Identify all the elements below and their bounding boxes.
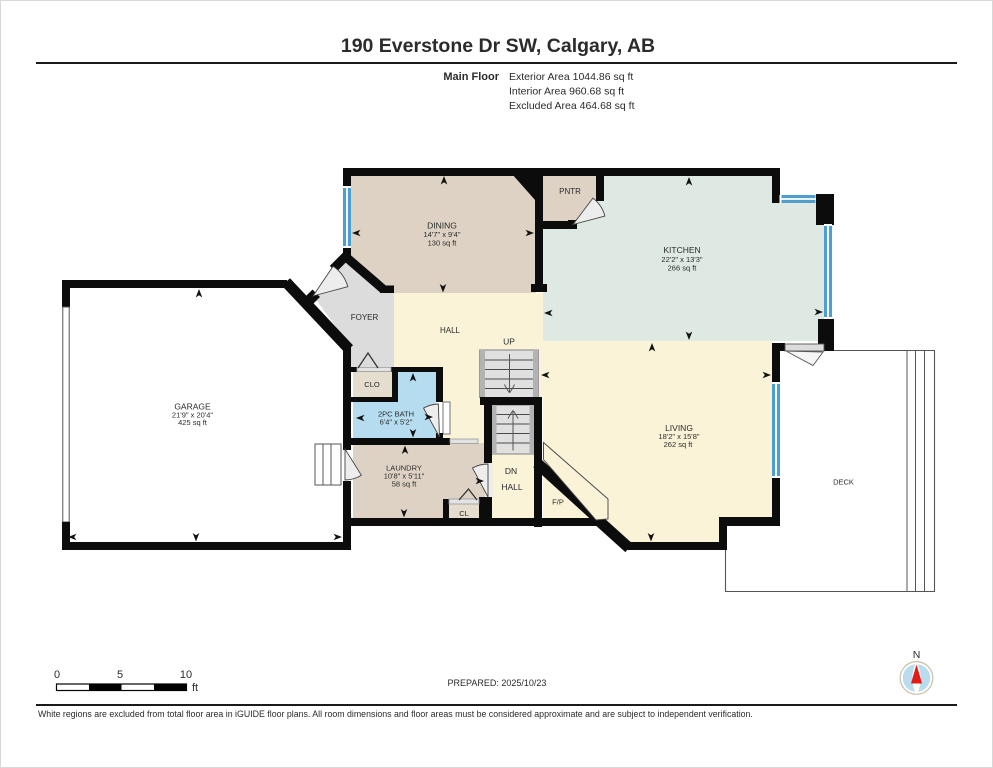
svg-text:DINING: DINING bbox=[427, 221, 457, 231]
svg-text:58 sq ft: 58 sq ft bbox=[392, 480, 418, 489]
svg-text:10: 10 bbox=[180, 669, 192, 681]
svg-text:PNTR: PNTR bbox=[559, 187, 581, 196]
svg-text:266 sq ft: 266 sq ft bbox=[668, 264, 698, 273]
svg-text:HALL: HALL bbox=[501, 482, 523, 492]
svg-text:FOYER: FOYER bbox=[351, 313, 379, 322]
svg-text:White regions are excluded fro: White regions are excluded from total fl… bbox=[38, 709, 753, 719]
svg-text:425 sq ft: 425 sq ft bbox=[178, 418, 208, 427]
svg-text:Interior Area 960.68 sq ft: Interior Area 960.68 sq ft bbox=[509, 86, 624, 98]
svg-text:6'4" x 5'2": 6'4" x 5'2" bbox=[380, 418, 413, 427]
svg-text:F/P: F/P bbox=[552, 498, 564, 507]
svg-text:HALL: HALL bbox=[440, 326, 461, 335]
svg-text:DECK: DECK bbox=[833, 478, 854, 487]
svg-text:Exterior Area 1044.86 sq ft: Exterior Area 1044.86 sq ft bbox=[509, 71, 633, 83]
svg-text:KITCHEN: KITCHEN bbox=[663, 245, 700, 255]
svg-text:UP: UP bbox=[503, 337, 515, 347]
svg-text:130 sq ft: 130 sq ft bbox=[428, 238, 458, 247]
svg-text:0: 0 bbox=[54, 669, 60, 681]
svg-text:190 Everstone Dr SW, Calgary,: 190 Everstone Dr SW, Calgary, AB bbox=[341, 35, 655, 57]
svg-text:CLO: CLO bbox=[364, 380, 380, 389]
svg-text:Main Floor: Main Floor bbox=[443, 71, 499, 83]
svg-text:DN: DN bbox=[505, 466, 517, 476]
svg-text:N: N bbox=[913, 649, 921, 661]
svg-text:5: 5 bbox=[117, 669, 123, 681]
svg-text:Excluded Area 464.68 sq ft: Excluded Area 464.68 sq ft bbox=[509, 100, 635, 112]
svg-text:CL: CL bbox=[459, 509, 469, 518]
svg-text:PREPARED: 2025/10/23: PREPARED: 2025/10/23 bbox=[448, 678, 547, 688]
svg-text:ft: ft bbox=[192, 682, 198, 694]
svg-text:262 sq ft: 262 sq ft bbox=[664, 440, 694, 449]
